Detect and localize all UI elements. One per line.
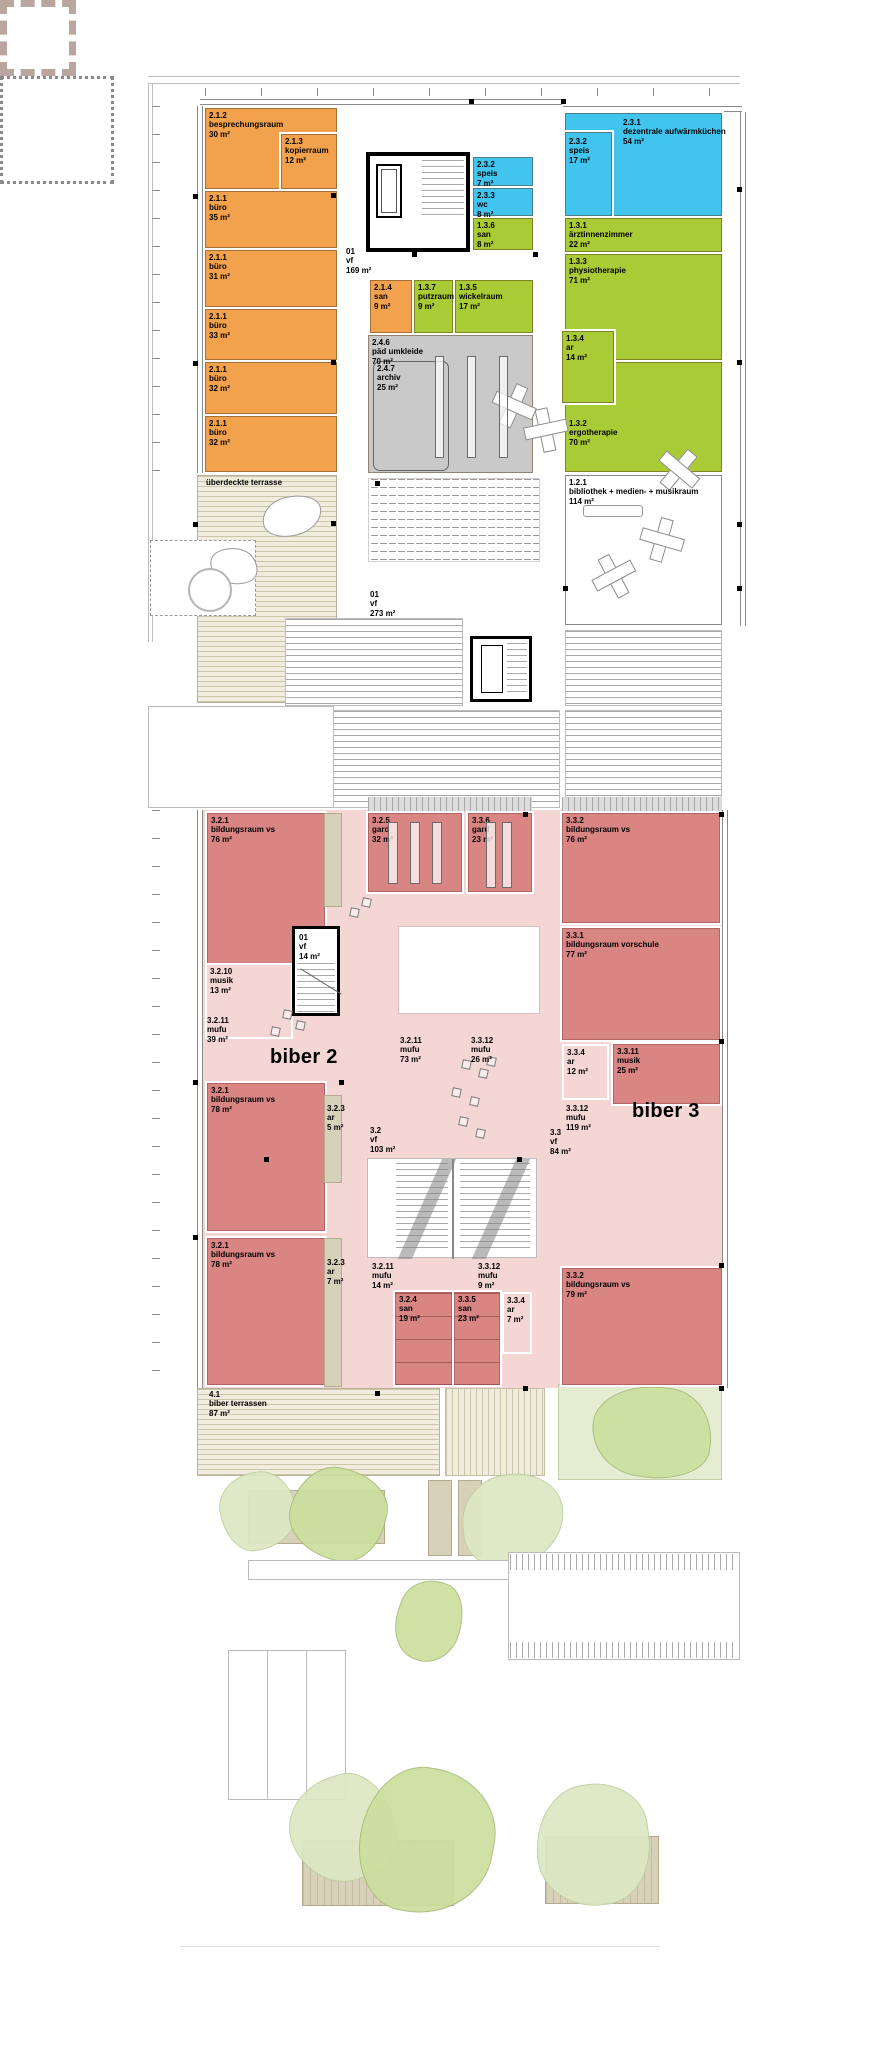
locker-row: [467, 356, 476, 458]
zone-label-line: vf: [370, 599, 395, 608]
seat-square-icon: [361, 897, 372, 908]
zone-label-line: 3.2.3: [327, 1104, 345, 1113]
room-area: 9 m²: [374, 302, 392, 311]
room-id: 3.2.1: [211, 1241, 275, 1250]
room-name: ergotherapie: [569, 428, 617, 437]
dimension-marker: [719, 1263, 724, 1268]
dimension-marker: [561, 99, 566, 104]
room-id: 2.1.1: [209, 194, 230, 203]
zone-label-line: mufu: [566, 1113, 591, 1122]
room-label: 2.4.6päd umkleide70 m²: [372, 338, 423, 366]
dimension-marker: [563, 586, 568, 591]
zone-label-line: überdeckte terrasse: [206, 478, 282, 487]
seat-square-icon: [458, 1116, 469, 1127]
room-name: bibliothek + medien- + musikraum: [569, 487, 698, 496]
room-area: 25 m²: [617, 1066, 640, 1075]
wardrobe-bench: [432, 822, 442, 884]
room-label: 1.3.5wickelraum17 m²: [459, 283, 503, 311]
room-label: 1.2.1bibliothek + medien- + musikraum114…: [569, 478, 698, 506]
room-area: 32 m²: [209, 384, 230, 393]
dimension-marker: [193, 361, 198, 366]
room-label: 1.3.1ärztinnenzimmer22 m²: [569, 221, 633, 249]
room-id: 2.3.2: [477, 160, 497, 169]
zone-label-line: 87 m²: [209, 1409, 267, 1418]
room-id: 1.3.1: [569, 221, 633, 230]
zone-label-line: 273 m²: [370, 609, 395, 618]
room-area: 22 m²: [569, 240, 633, 249]
zone-label-line: ar: [327, 1113, 345, 1122]
dimension-marker: [469, 99, 474, 104]
room-name: dezentrale aufwärmküchen: [623, 127, 726, 136]
room-name: san: [477, 230, 495, 239]
room-label: 2.1.1büro33 m²: [209, 312, 230, 340]
room-name: musik: [210, 976, 233, 985]
room-area: 23 m²: [458, 1314, 479, 1323]
room-id: 3.2.10: [210, 967, 233, 976]
room-id: 2.1.2: [209, 111, 283, 120]
room-label: 2.3.2speis17 m²: [569, 137, 590, 165]
dimension-marker: [193, 1235, 198, 1240]
zone-label-line: 169 m²: [346, 266, 371, 275]
locker-row: [435, 356, 444, 458]
zone-label-line: mufu: [478, 1271, 500, 1280]
room-area: 33 m²: [209, 331, 230, 340]
room-label: 3.3.2bildungsraum vs79 m²: [566, 1271, 630, 1299]
room-label: 3.2.4san19 m²: [399, 1295, 420, 1323]
room-label: 2.3.1dezentrale aufwärmküchen54 m²: [623, 118, 726, 146]
wardrobe-bench: [410, 822, 420, 884]
zone-label-line: 3.2.3: [327, 1258, 345, 1267]
dimension-marker: [339, 1080, 344, 1085]
dimension-marker: [737, 360, 742, 365]
seat-square-icon: [478, 1068, 489, 1079]
room-area: 31 m²: [209, 272, 230, 281]
zone-label-line: vf: [299, 942, 320, 951]
zone-label-line: 3.3.12: [478, 1262, 500, 1271]
zone-label-line: mufu: [207, 1025, 229, 1034]
dimension-marker: [719, 812, 724, 817]
room-name: speis: [477, 169, 497, 178]
zone-label-line: biber terrassen: [209, 1399, 267, 1408]
room-label: 1.3.7putzraum9 m²: [418, 283, 454, 311]
room-id: 3.2.1: [211, 1086, 275, 1095]
room-name: büro: [209, 428, 230, 437]
table-round-icon: [188, 568, 232, 612]
room-name: besprechungsraum: [209, 120, 283, 129]
seat-square-icon: [475, 1128, 486, 1139]
zone-label-line: vf: [550, 1137, 571, 1146]
room-id: 2.3.3: [477, 191, 495, 200]
zone-label-line: vf: [370, 1135, 395, 1144]
room-area: 12 m²: [285, 156, 329, 165]
room-label: 1.3.6san8 m²: [477, 221, 495, 249]
room-label: 3.3.5san23 m²: [458, 1295, 479, 1323]
dimension-marker: [193, 522, 198, 527]
zone-label: 3.3.12mufu9 m²: [478, 1262, 500, 1290]
dimension-marker: [331, 193, 336, 198]
room-area: 76 m²: [566, 835, 630, 844]
zone-label-line: 01: [370, 590, 395, 599]
zone-label-line: 26 m²: [471, 1055, 493, 1064]
zone-label-line: 4.1: [209, 1390, 267, 1399]
room-name: bildungsraum vs: [211, 825, 275, 834]
room-id: 2.1.1: [209, 365, 230, 374]
room-label: 3.3.4ar12 m²: [567, 1048, 588, 1076]
room-id: 3.3.5: [458, 1295, 479, 1304]
room-name: wc: [477, 200, 495, 209]
room-id: 1.3.3: [569, 257, 626, 266]
room-area: 30 m²: [209, 130, 283, 139]
wardrobe-bench: [502, 822, 512, 888]
room-area: 19 m²: [399, 1314, 420, 1323]
room-name: päd umkleide: [372, 347, 423, 356]
room-area: 71 m²: [569, 276, 626, 285]
room-name: san: [399, 1304, 420, 1313]
room-area: 7 m²: [507, 1315, 525, 1324]
room-label: 2.1.1büro32 m²: [209, 365, 230, 393]
zone-label-line: vf: [346, 256, 371, 265]
group-label: biber 2: [270, 1046, 338, 1069]
room-id: 1.2.1: [569, 478, 698, 487]
room-label: 2.1.1büro35 m²: [209, 194, 230, 222]
zone-label-line: 3.2.11: [207, 1016, 229, 1025]
zone-label: 3.2.11mufu14 m²: [372, 1262, 394, 1290]
dimension-marker: [737, 586, 742, 591]
seat-square-icon: [270, 1026, 281, 1037]
room-area: 25 m²: [377, 383, 401, 392]
room-name: ar: [567, 1057, 588, 1066]
room-area: 78 m²: [211, 1260, 275, 1269]
room-area: 8 m²: [477, 240, 495, 249]
room-label: 3.3.1bildungsraum vorschule77 m²: [566, 931, 659, 959]
room-area: 13 m²: [210, 986, 233, 995]
room-name: bildungsraum vorschule: [566, 940, 659, 949]
seat-square-icon: [282, 1009, 293, 1020]
zone-label-line: 9 m²: [478, 1281, 500, 1290]
dimension-marker: [375, 1391, 380, 1396]
room-id: 2.1.1: [209, 312, 230, 321]
zone-label: 3.2.3ar7 m²: [327, 1258, 345, 1286]
dimension-marker: [412, 252, 417, 257]
room-label: 1.3.4ar14 m²: [566, 334, 587, 362]
room-label: 3.2.1bildungsraum vs78 m²: [211, 1086, 275, 1114]
room-name: physiotherapie: [569, 266, 626, 275]
room-label: 3.3.2bildungsraum vs76 m²: [566, 816, 630, 844]
zone-label-line: 3.2.11: [400, 1036, 422, 1045]
zone-label-line: 3.2: [370, 1126, 395, 1135]
zone-label-line: 3.2.11: [372, 1262, 394, 1271]
room-area: 77 m²: [566, 950, 659, 959]
room-area: 14 m²: [566, 353, 587, 362]
room-id: 2.1.3: [285, 137, 329, 146]
room-name: bildungsraum vs: [566, 825, 630, 834]
room-name: bildungsraum vs: [566, 1280, 630, 1289]
room-area: 7 m²: [477, 179, 497, 188]
dimension-marker: [719, 1039, 724, 1044]
zone-label-line: 7 m²: [327, 1277, 345, 1286]
dimension-marker: [193, 1080, 198, 1085]
room-label: 3.2.1bildungsraum vs76 m²: [211, 816, 275, 844]
room-label: 1.3.3physiotherapie71 m²: [569, 257, 626, 285]
room-label: 3.3.11musik25 m²: [617, 1047, 640, 1075]
dimension-marker: [331, 521, 336, 526]
room-label: 1.3.2ergotherapie70 m²: [569, 419, 617, 447]
zone-label-line: 3.3: [550, 1128, 571, 1137]
room-label: 2.1.2besprechungsraum30 m²: [209, 111, 283, 139]
zone-label: 01vf169 m²: [346, 247, 371, 275]
zone-label-line: 39 m²: [207, 1035, 229, 1044]
zone-label: 3.2.11mufu73 m²: [400, 1036, 422, 1064]
zone-label-line: 01: [346, 247, 371, 256]
zone-label-line: 3.3.12: [566, 1104, 591, 1113]
room-name: ar: [566, 343, 587, 352]
room-name: ärztinnenzimmer: [569, 230, 633, 239]
room-area: 79 m²: [566, 1290, 630, 1299]
room-id: 1.3.4: [566, 334, 587, 343]
room-id: 3.3.4: [567, 1048, 588, 1057]
room-label: 3.2.10musik13 m²: [210, 967, 233, 995]
room-name: putzraum: [418, 292, 454, 301]
room-label: 2.3.3wc8 m²: [477, 191, 495, 219]
zone-label-line: mufu: [471, 1045, 493, 1054]
room-area: 8 m²: [477, 210, 495, 219]
room-area: 76 m²: [211, 835, 275, 844]
room-name: musik: [617, 1056, 640, 1065]
zone-label: 3.2vf103 m²: [370, 1126, 395, 1154]
zone-label-line: ar: [327, 1267, 345, 1276]
room-name: kopierraum: [285, 146, 329, 155]
room-label: 2.1.1büro31 m²: [209, 253, 230, 281]
zone-label: 3.2.3ar5 m²: [327, 1104, 345, 1132]
zone-label: 3.3vf84 m²: [550, 1128, 571, 1156]
group-label: biber 3: [632, 1100, 700, 1123]
room-name: speis: [569, 146, 590, 155]
room-name: san: [374, 292, 392, 301]
room-id: 2.1.1: [209, 419, 230, 428]
room-name: büro: [209, 374, 230, 383]
seat-square-icon: [295, 1020, 306, 1031]
room-id: 2.4.6: [372, 338, 423, 347]
zone-label-line: 73 m²: [400, 1055, 422, 1064]
room-id: 1.3.5: [459, 283, 503, 292]
room-area: 54 m²: [623, 137, 726, 146]
room-name: büro: [209, 321, 230, 330]
dimension-marker: [375, 481, 380, 486]
room-name: büro: [209, 262, 230, 271]
room-area: 35 m²: [209, 213, 230, 222]
zone-label-line: 01: [299, 933, 320, 942]
zone-label-line: 84 m²: [550, 1147, 571, 1156]
room-label: 2.4.7archiv25 m²: [377, 364, 401, 392]
seat-square-icon: [349, 907, 360, 918]
dimension-marker: [737, 522, 742, 527]
play-cross-icon: [520, 404, 572, 456]
room-id: 2.1.1: [209, 253, 230, 262]
dimension-marker: [264, 1157, 269, 1162]
zone-label-line: mufu: [400, 1045, 422, 1054]
room-area: 12 m²: [567, 1067, 588, 1076]
dimension-marker: [719, 1386, 724, 1391]
room-id: 1.3.6: [477, 221, 495, 230]
room-name: archiv: [377, 373, 401, 382]
room-id: 1.3.2: [569, 419, 617, 428]
zone-label: 01vf14 m²: [299, 933, 320, 961]
room-area: 78 m²: [211, 1105, 275, 1114]
room-name: ar: [507, 1305, 525, 1314]
room-name: büro: [209, 203, 230, 212]
room-id: 2.3.1: [623, 118, 726, 127]
dimension-marker: [517, 1157, 522, 1162]
locker-row: [499, 356, 508, 458]
room-id: 3.2.4: [399, 1295, 420, 1304]
zone-label-line: 14 m²: [299, 952, 320, 961]
room-id: 3.3.2: [566, 1271, 630, 1280]
room-name: wickelraum: [459, 292, 503, 301]
room-area: 9 m²: [418, 302, 454, 311]
zone-label: 01vf273 m²: [370, 590, 395, 618]
zone-label-line: 103 m²: [370, 1145, 395, 1154]
zone-label-line: 14 m²: [372, 1281, 394, 1290]
zone-label-line: 3.3.12: [471, 1036, 493, 1045]
wardrobe-bench: [388, 822, 398, 884]
room-id: 3.3.2: [566, 816, 630, 825]
room-label: 2.1.3kopierraum12 m²: [285, 137, 329, 165]
room-area: 17 m²: [459, 302, 503, 311]
room-id: 3.3.1: [566, 931, 659, 940]
dimension-marker: [331, 360, 336, 365]
dimension-marker: [737, 187, 742, 192]
zone-label: überdeckte terrasse: [206, 478, 282, 487]
dimension-marker: [533, 252, 538, 257]
room-name: bildungsraum vs: [211, 1250, 275, 1259]
room-id: 3.3.11: [617, 1047, 640, 1056]
room-label: 2.3.2speis7 m²: [477, 160, 497, 188]
floor-plan: 2.1.2besprechungsraum30 m²2.1.3kopierrau…: [0, 0, 875, 2048]
room-id: 2.4.7: [377, 364, 401, 373]
room-id: 2.3.2: [569, 137, 590, 146]
dimension-marker: [193, 194, 198, 199]
room-label: 3.2.1bildungsraum vs78 m²: [211, 1241, 275, 1269]
zone-label: 4.1biber terrassen87 m²: [209, 1390, 267, 1418]
room-name: bildungsraum vs: [211, 1095, 275, 1104]
room-area: 32 m²: [209, 438, 230, 447]
room-label: 2.1.4san9 m²: [374, 283, 392, 311]
room-label: 2.1.1büro32 m²: [209, 419, 230, 447]
room-id: 1.3.7: [418, 283, 454, 292]
room-name: san: [458, 1304, 479, 1313]
room-area: 114 m²: [569, 497, 698, 506]
room-id: 3.3.4: [507, 1296, 525, 1305]
room-label: 3.3.4ar7 m²: [507, 1296, 525, 1324]
seat-square-icon: [469, 1096, 480, 1107]
room-id: 3.2.1: [211, 816, 275, 825]
zone-label: 3.2.11mufu39 m²: [207, 1016, 229, 1044]
zone-label-line: 5 m²: [327, 1123, 345, 1132]
zone-label: 3.3.12mufu26 m²: [471, 1036, 493, 1064]
room-area: 17 m²: [569, 156, 590, 165]
room-area: 70 m²: [569, 438, 617, 447]
seat-square-icon: [451, 1087, 462, 1098]
dimension-marker: [523, 1386, 528, 1391]
dimension-marker: [523, 812, 528, 817]
zone-label-line: mufu: [372, 1271, 394, 1280]
wardrobe-bench: [486, 822, 496, 888]
room-id: 2.1.4: [374, 283, 392, 292]
